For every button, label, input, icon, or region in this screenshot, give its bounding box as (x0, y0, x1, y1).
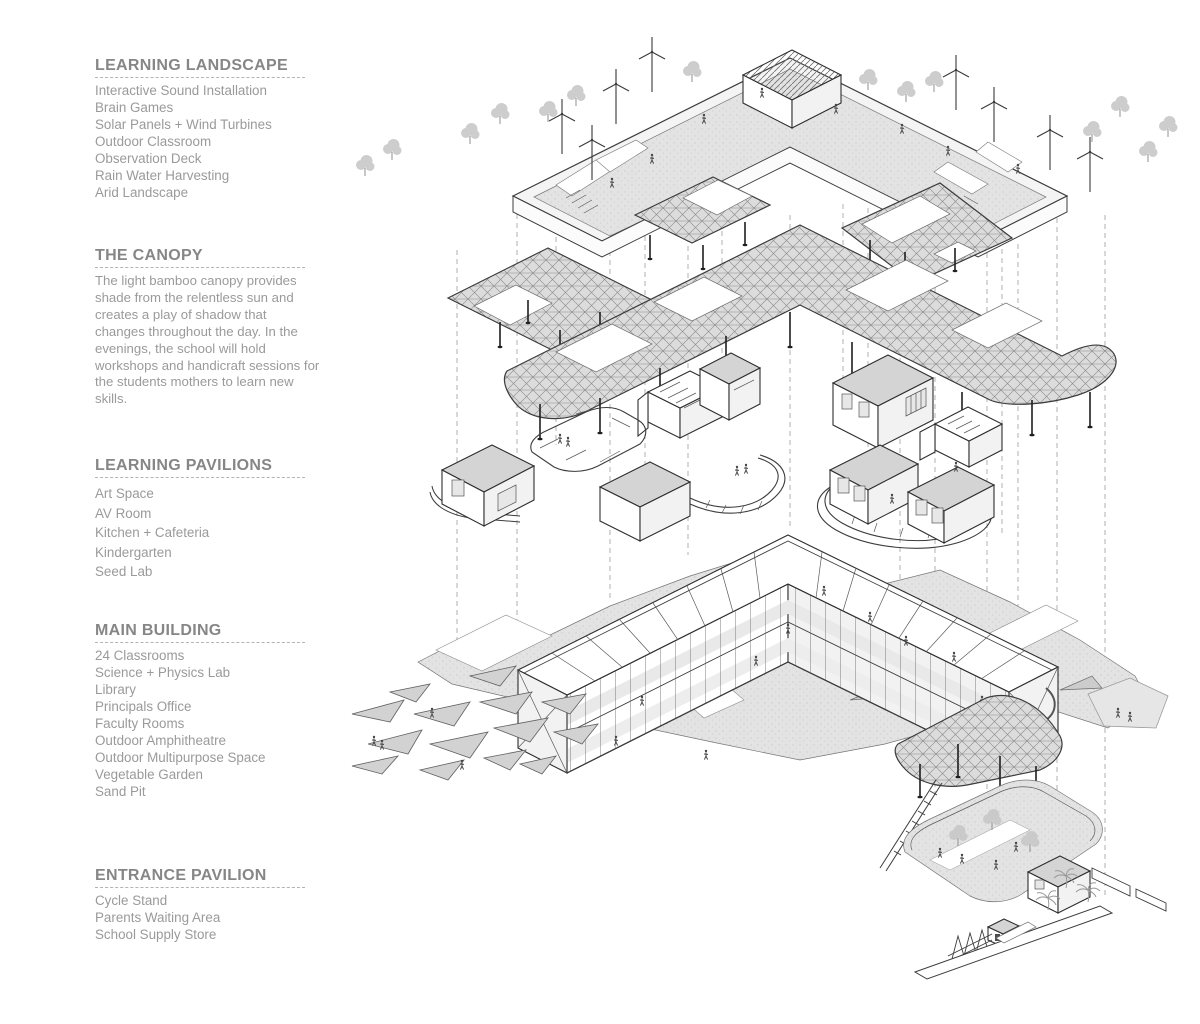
section-item: Principals Office (95, 698, 333, 715)
section-title: THE CANOPY (95, 247, 305, 268)
pavilion-av-room (700, 353, 760, 420)
section-paragraph: The light bamboo canopy provides shade f… (95, 273, 320, 408)
section-title: ENTRANCE PAVILION (95, 867, 305, 888)
section-learning-pavilions: LEARNING PAVILIONS Art SpaceAV RoomKitch… (95, 457, 333, 582)
pavilion-large-box (833, 355, 933, 448)
pavilion-kitchen (600, 455, 785, 541)
section-item: Sand Pit (95, 783, 333, 800)
entrance-fences (1092, 868, 1166, 911)
exploded-axonometric-page: LEARNING LANDSCAPE Interactive Sound Ins… (0, 0, 1200, 1024)
section-item: Outdoor Multipurpose Space (95, 749, 333, 766)
section-item-list: 24 ClassroomsScience + Physics LabLibrar… (95, 647, 333, 800)
section-item-list: Art SpaceAV RoomKitchen + CafeteriaKinde… (95, 484, 333, 582)
section-item: Solar Panels + Wind Turbines (95, 116, 333, 133)
section-entrance-pavilion: ENTRANCE PAVILION Cycle StandParents Wai… (95, 867, 333, 943)
section-item-list: Cycle StandParents Waiting AreaSchool Su… (95, 892, 333, 943)
section-item: Observation Deck (95, 150, 333, 167)
section-item: Kindergarten (95, 543, 333, 563)
bamboo-canopy-layer (504, 225, 1116, 440)
pavilion-art-space (430, 445, 534, 526)
entrance-pavilion-layer (880, 696, 1166, 979)
section-item-list: Interactive Sound InstallationBrain Game… (95, 82, 333, 201)
section-main-building: MAIN BUILDING 24 ClassroomsScience + Phy… (95, 622, 333, 800)
section-item: Faculty Rooms (95, 715, 333, 732)
section-item: Cycle Stand (95, 892, 333, 909)
section-item: Interactive Sound Installation (95, 82, 333, 99)
section-item: Outdoor Amphitheatre (95, 732, 333, 749)
section-item: Kitchen + Cafeteria (95, 523, 333, 543)
section-learning-landscape: LEARNING LANDSCAPE Interactive Sound Ins… (95, 57, 333, 201)
section-item: AV Room (95, 504, 333, 524)
section-title: LEARNING LANDSCAPE (95, 57, 305, 78)
section-item: Library (95, 681, 333, 698)
section-title: LEARNING PAVILIONS (95, 457, 305, 478)
section-item: 24 Classrooms (95, 647, 333, 664)
section-item: Rain Water Harvesting (95, 167, 333, 184)
entry-path (915, 906, 1112, 979)
section-item: Seed Lab (95, 562, 333, 582)
section-title: MAIN BUILDING (95, 622, 305, 643)
section-item: Art Space (95, 484, 333, 504)
section-item: Brain Games (95, 99, 333, 116)
section-item: Arid Landscape (95, 184, 333, 201)
learning-landscape-layer (356, 37, 1178, 257)
section-item: Science + Physics Lab (95, 664, 333, 681)
section-item: Vegetable Garden (95, 766, 333, 783)
section-the-canopy: THE CANOPY The light bamboo canopy provi… (95, 247, 333, 408)
section-item: School Supply Store (95, 926, 333, 943)
section-item: Parents Waiting Area (95, 909, 333, 926)
section-item: Outdoor Classroom (95, 133, 333, 150)
